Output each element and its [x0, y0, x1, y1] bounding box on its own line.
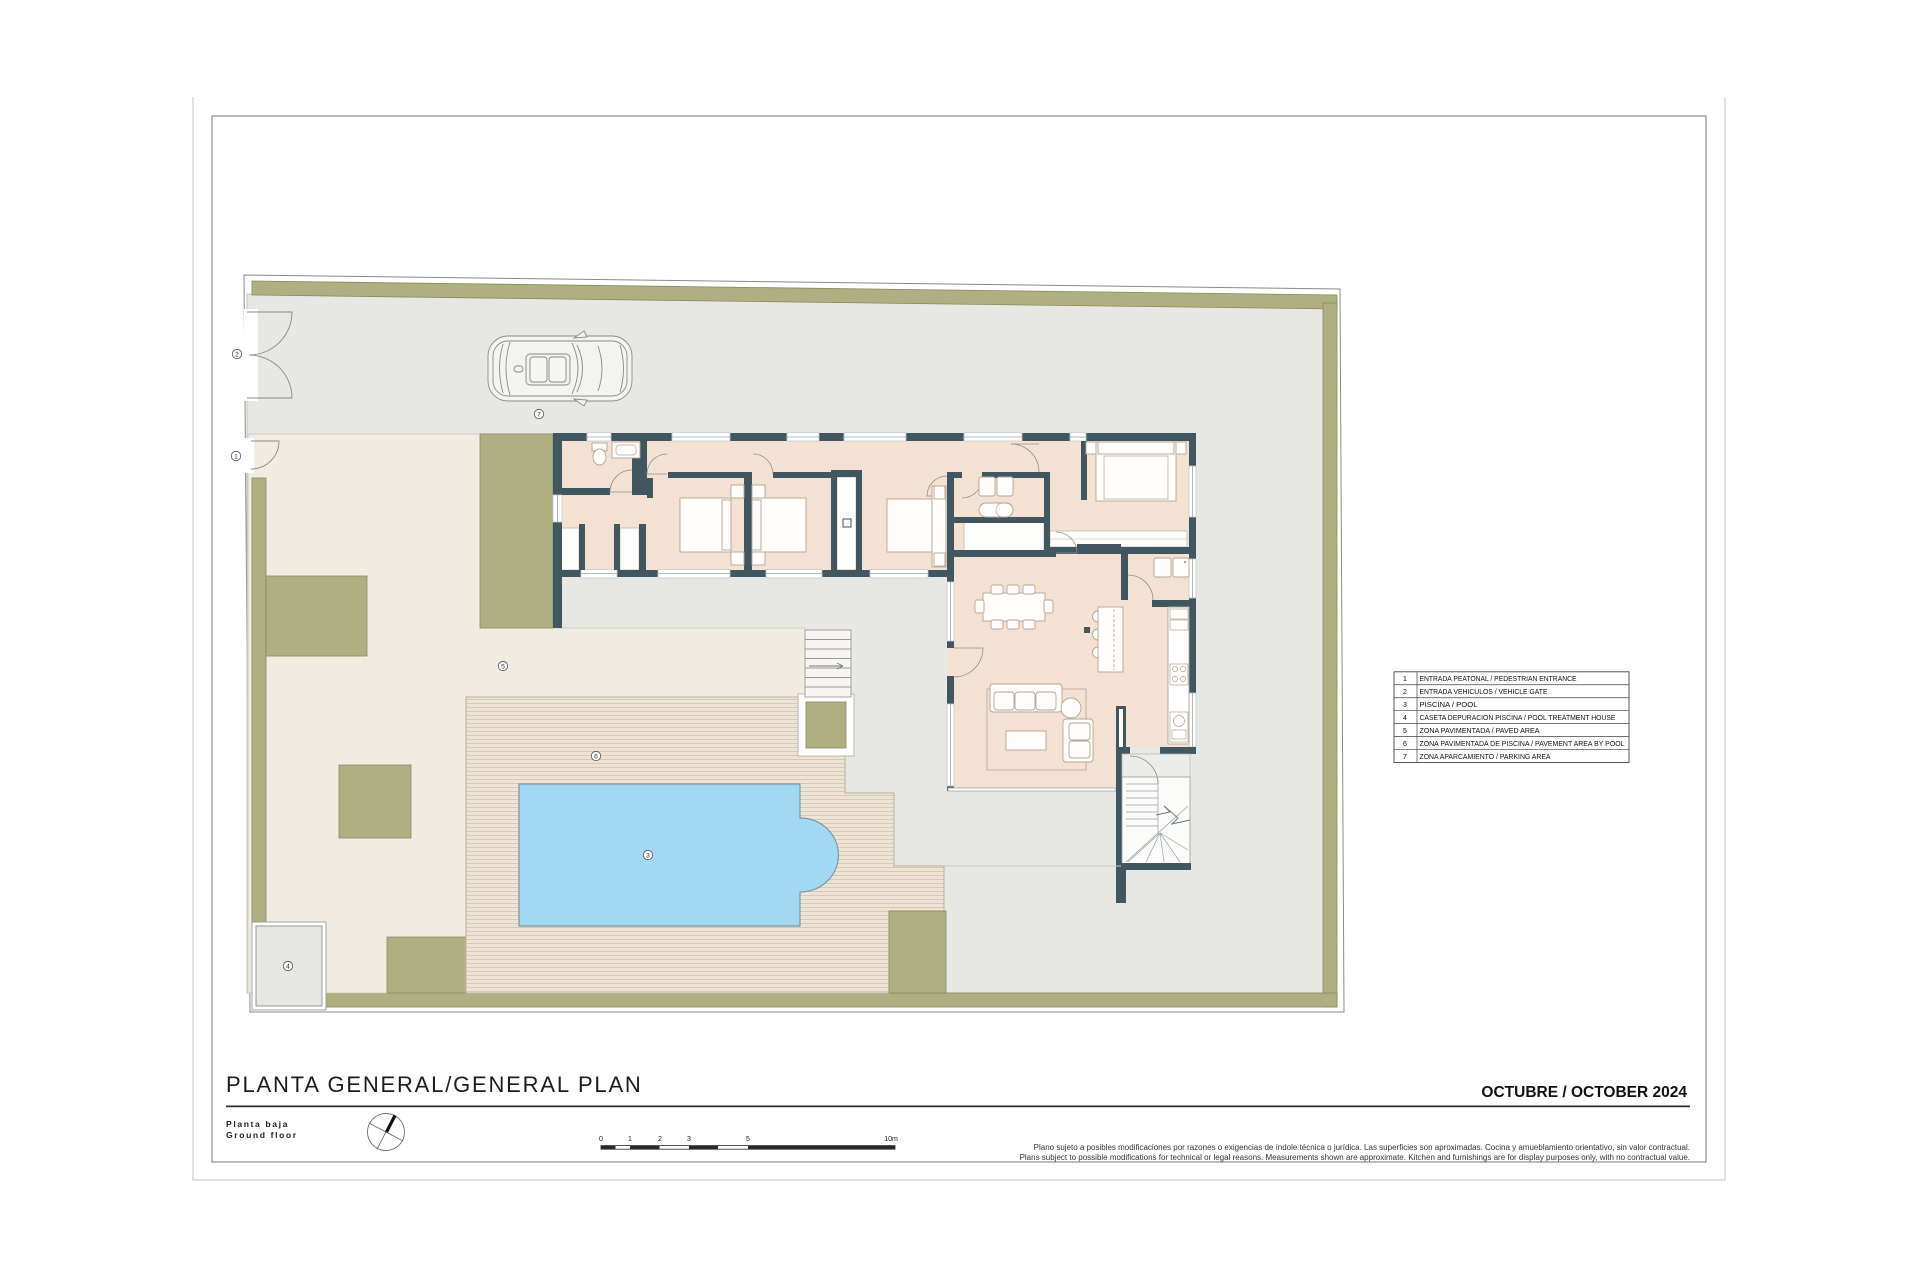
- svg-text:1: 1: [628, 1136, 632, 1143]
- svg-text:3: 3: [646, 852, 650, 859]
- svg-text:5: 5: [1403, 728, 1407, 735]
- svg-text:4: 4: [1403, 715, 1407, 722]
- svg-text:Planta baja: Planta baja: [226, 1119, 289, 1129]
- svg-text:1: 1: [234, 453, 238, 460]
- svg-text:Ground floor: Ground floor: [226, 1130, 298, 1140]
- svg-text:2: 2: [658, 1136, 662, 1143]
- svg-text:3: 3: [687, 1136, 691, 1143]
- svg-text:2: 2: [235, 351, 239, 358]
- svg-text:6: 6: [594, 753, 598, 760]
- svg-text:3: 3: [1403, 702, 1407, 709]
- svg-text:ENTRADA VEHICULOS / VEHICLE GA: ENTRADA VEHICULOS / VEHICLE GATE: [1420, 689, 1548, 696]
- svg-text:0: 0: [599, 1136, 603, 1143]
- svg-text:2: 2: [1403, 689, 1407, 696]
- svg-text:OCTUBRE / OCTOBER 2024: OCTUBRE / OCTOBER 2024: [1481, 1084, 1687, 1101]
- svg-text:Plano sujeto a posibles modifi: Plano sujeto a posibles modificaciones p…: [1034, 1143, 1690, 1152]
- svg-text:ENTRADA PEATONAL / PEDESTRIAN: ENTRADA PEATONAL / PEDESTRIAN ENTRANCE: [1420, 676, 1577, 683]
- svg-text:5: 5: [501, 663, 505, 670]
- svg-text:10m: 10m: [884, 1136, 898, 1143]
- svg-text:ZONA PAVIMENTADA / PAVED AREA: ZONA PAVIMENTADA / PAVED AREA: [1420, 728, 1540, 735]
- svg-text:Plans subject to possible modi: Plans subject to possible modifications …: [1020, 1153, 1690, 1162]
- svg-text:CASETA DEPURACION PISCINA / PO: CASETA DEPURACION PISCINA / POOL TREATME…: [1420, 715, 1616, 722]
- svg-text:4: 4: [286, 963, 290, 970]
- svg-text:PLANTA GENERAL/GENERAL PLAN: PLANTA GENERAL/GENERAL PLAN: [226, 1072, 643, 1097]
- svg-text:1: 1: [1403, 676, 1407, 683]
- svg-text:6: 6: [1403, 741, 1407, 748]
- svg-text:7: 7: [537, 411, 541, 418]
- svg-text:ZONA PAVIMENTADA DE PISCINA /: ZONA PAVIMENTADA DE PISCINA / PAVEMENT A…: [1420, 741, 1625, 748]
- svg-text:ZONA APARCAMIENTO / PARKING AR: ZONA APARCAMIENTO / PARKING AREA: [1420, 754, 1551, 761]
- svg-text:7: 7: [1403, 754, 1407, 761]
- svg-text:PISCINA / POOL: PISCINA / POOL: [1420, 702, 1478, 709]
- svg-text:5: 5: [746, 1136, 750, 1143]
